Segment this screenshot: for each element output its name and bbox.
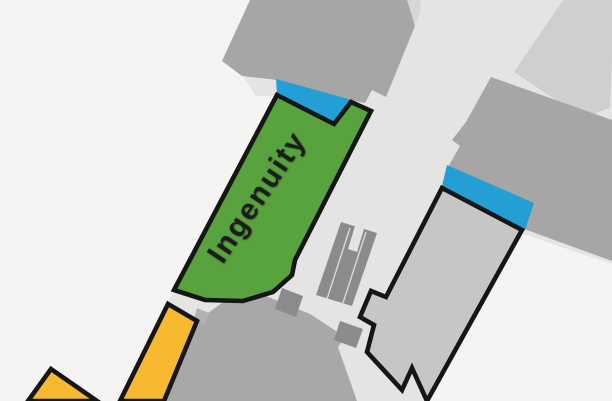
- mall-map-canvas[interactable]: Ingenuity: [0, 0, 612, 401]
